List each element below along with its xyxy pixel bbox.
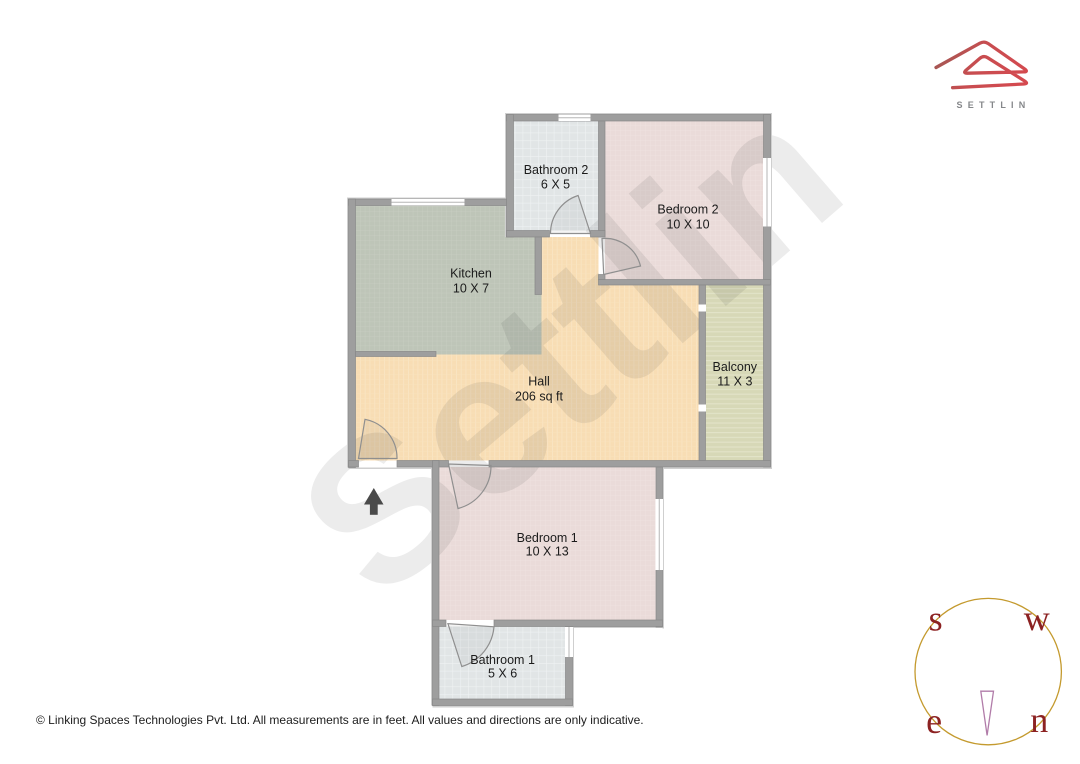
svg-text:n: n [1030,700,1048,740]
svg-text:206 sq ft: 206 sq ft [515,389,563,403]
svg-text:10 X 7: 10 X 7 [453,281,489,295]
svg-text:w: w [1024,598,1050,638]
svg-text:Bedroom 1: Bedroom 1 [517,531,578,545]
svg-text:5 X 6: 5 X 6 [488,666,517,680]
svg-text:Balcony: Balcony [713,360,758,374]
svg-text:Hall: Hall [528,375,550,389]
svg-text:11 X 3: 11 X 3 [717,375,752,389]
svg-text:10 X 13: 10 X 13 [526,544,569,558]
svg-text:Kitchen: Kitchen [450,267,492,281]
svg-text:Bathroom 1: Bathroom 1 [470,653,535,667]
svg-text:Bathroom 2: Bathroom 2 [524,163,589,177]
svg-text:s: s [929,599,943,639]
svg-text:e: e [926,701,942,741]
svg-text:6 X 5: 6 X 5 [541,178,570,192]
svg-text:10 X 10: 10 X 10 [666,217,709,231]
svg-text:Bedroom 2: Bedroom 2 [657,203,718,217]
